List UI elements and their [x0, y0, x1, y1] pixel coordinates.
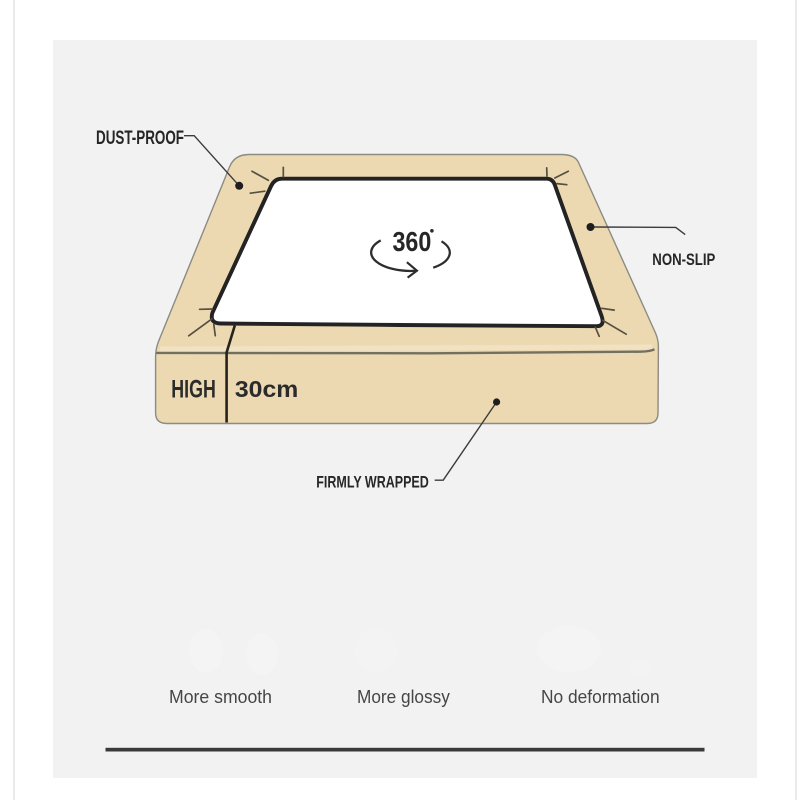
svg-text:DUST-PROOF: DUST-PROOF — [96, 127, 184, 149]
svg-text:360: 360 — [393, 226, 432, 257]
svg-text:HIGH: HIGH — [171, 376, 216, 404]
svg-text:FIRMLY WRAPPED: FIRMLY WRAPPED — [316, 472, 429, 491]
svg-text:More smooth: More smooth — [169, 687, 272, 707]
svg-text:No deformation: No deformation — [541, 687, 660, 707]
svg-text:More glossy: More glossy — [357, 687, 450, 707]
svg-text:30cm: 30cm — [235, 376, 298, 402]
svg-text:NON-SLIP: NON-SLIP — [652, 250, 715, 269]
